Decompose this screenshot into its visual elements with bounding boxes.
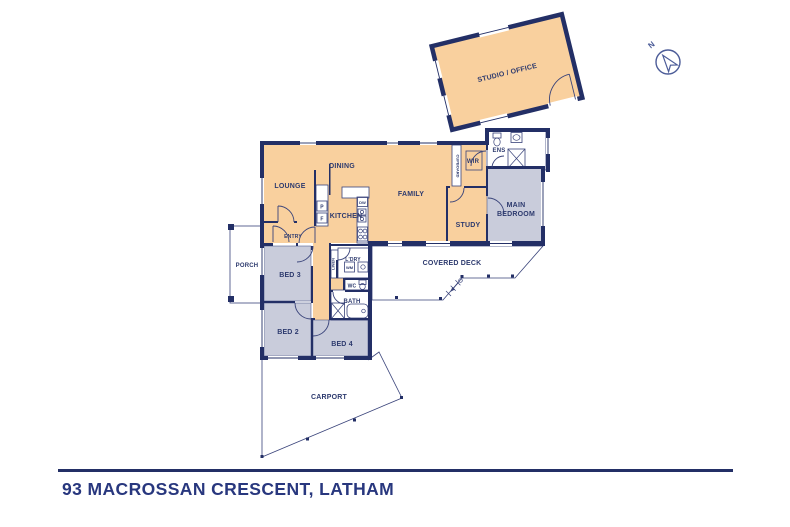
room-label-covered-deck: COVERED DECK — [423, 260, 482, 267]
studio-office-room: STUDIO / OFFICE — [428, 11, 583, 133]
room-label-main-bedroom: BEDROOM — [497, 211, 535, 218]
room-label-wc: WC — [348, 284, 357, 290]
room-label-laundry: L'DRY — [345, 257, 361, 263]
room-label-kitchen: KITCHEN — [330, 213, 363, 220]
room-label-wir: WIR — [467, 159, 480, 165]
room-label-main-bedroom: MAIN — [507, 202, 526, 209]
laundry-tub-icon — [358, 262, 368, 272]
page-title: 93 MACROSSAN CRESCENT, LATHAM — [62, 479, 394, 500]
floor-plan-svg: STUDIO / OFFICE N LOUNGE DINING KITCHEN … — [0, 0, 790, 470]
fixture-label-pantry: P — [320, 205, 324, 211]
bathtub-icon — [347, 304, 368, 318]
fixture-label-dishwasher: DW — [359, 200, 366, 205]
covered-deck-area — [372, 246, 543, 300]
bed4-floor — [313, 320, 368, 356]
deck-floor — [372, 246, 543, 300]
footer-divider — [58, 469, 733, 472]
carport-outline — [262, 352, 402, 457]
room-label-porch: PORCH — [236, 263, 259, 269]
room-label-study: STUDY — [456, 222, 481, 229]
bath-vestibule-floor — [331, 278, 345, 290]
room-label-bed3: BED 3 — [279, 272, 301, 279]
room-label-linen: LINEN — [331, 258, 336, 270]
room-label-family: FAMILY — [398, 191, 424, 198]
compass: N — [646, 40, 680, 74]
room-label-cupboard: CUPBOARD — [456, 154, 461, 177]
floor-plan-page: STUDIO / OFFICE N LOUNGE DINING KITCHEN … — [0, 0, 790, 527]
room-label-bed2: BED 2 — [277, 329, 299, 336]
room-label-bed4: BED 4 — [331, 341, 353, 348]
kitchen-bench-top — [342, 187, 369, 198]
ens-toilet-icon — [493, 133, 501, 138]
hall-floor — [313, 243, 331, 320]
compass-north-label: N — [646, 40, 656, 51]
compass-arrow-icon — [658, 52, 677, 72]
room-label-bath: BATH — [343, 299, 360, 305]
fixture-label-washing-machine: WM — [346, 265, 354, 270]
room-label-lounge: LOUNGE — [274, 183, 305, 190]
room-label-ens: ENS — [493, 148, 506, 154]
room-label-carport: CARPORT — [311, 394, 348, 401]
fixture-label-fridge: F — [320, 217, 323, 223]
room-label-dining: DINING — [329, 163, 355, 170]
carport-area — [261, 352, 404, 458]
room-label-entry: ENTRY — [284, 234, 302, 240]
study-floor — [448, 186, 488, 243]
